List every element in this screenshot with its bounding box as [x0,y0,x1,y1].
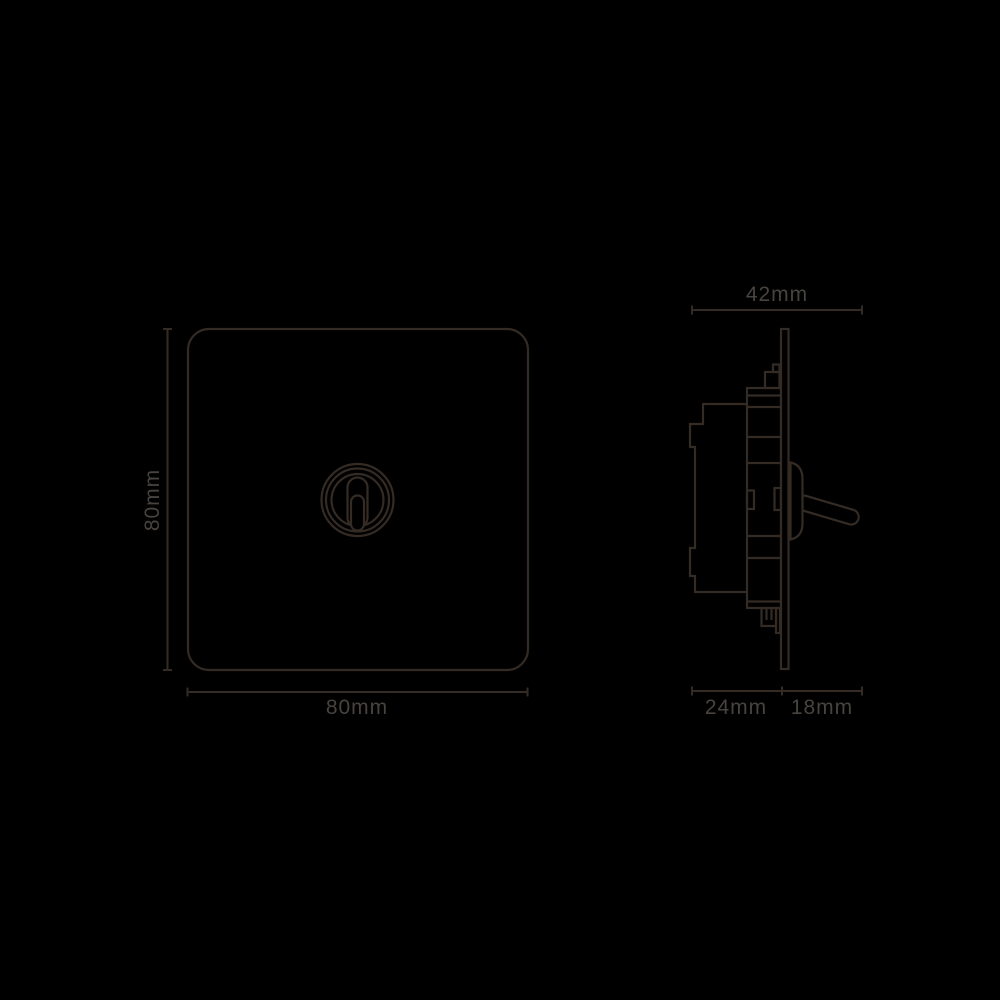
toggle-lever-front [351,496,364,531]
toggle-dome [791,463,803,540]
back-box-outline [690,404,747,592]
bottom-clip-step [776,608,780,633]
side-plate-edge [781,329,789,669]
front-width-label: 80mm [326,696,388,719]
box-depth-dimension: 24mm [692,687,782,720]
front-height-dimension: 80mm [141,329,172,670]
front-view: 80mm 80mm [141,329,528,719]
top-clip-step [773,365,780,373]
module-body [747,388,781,608]
switch-module [747,365,781,634]
side-depth-dimension: 42mm [692,283,862,315]
module-notch [747,491,754,510]
front-height-label: 80mm [141,469,164,531]
front-width-dimension: 80mm [188,688,528,720]
top-clip [765,372,780,388]
toggle-depth-label: 18mm [791,696,853,719]
side-depth-label: 42mm [746,283,808,306]
bottom-clip [762,608,777,626]
toggle-depth-dimension: 18mm [783,687,862,720]
box-depth-label: 24mm [705,696,767,719]
technical-drawing: 80mm 80mm 42mm [0,0,1000,1000]
drawing-canvas: 80mm 80mm 42mm [0,0,1000,1000]
toggle-lever-side [795,494,861,527]
side-view: 42mm [690,283,862,719]
